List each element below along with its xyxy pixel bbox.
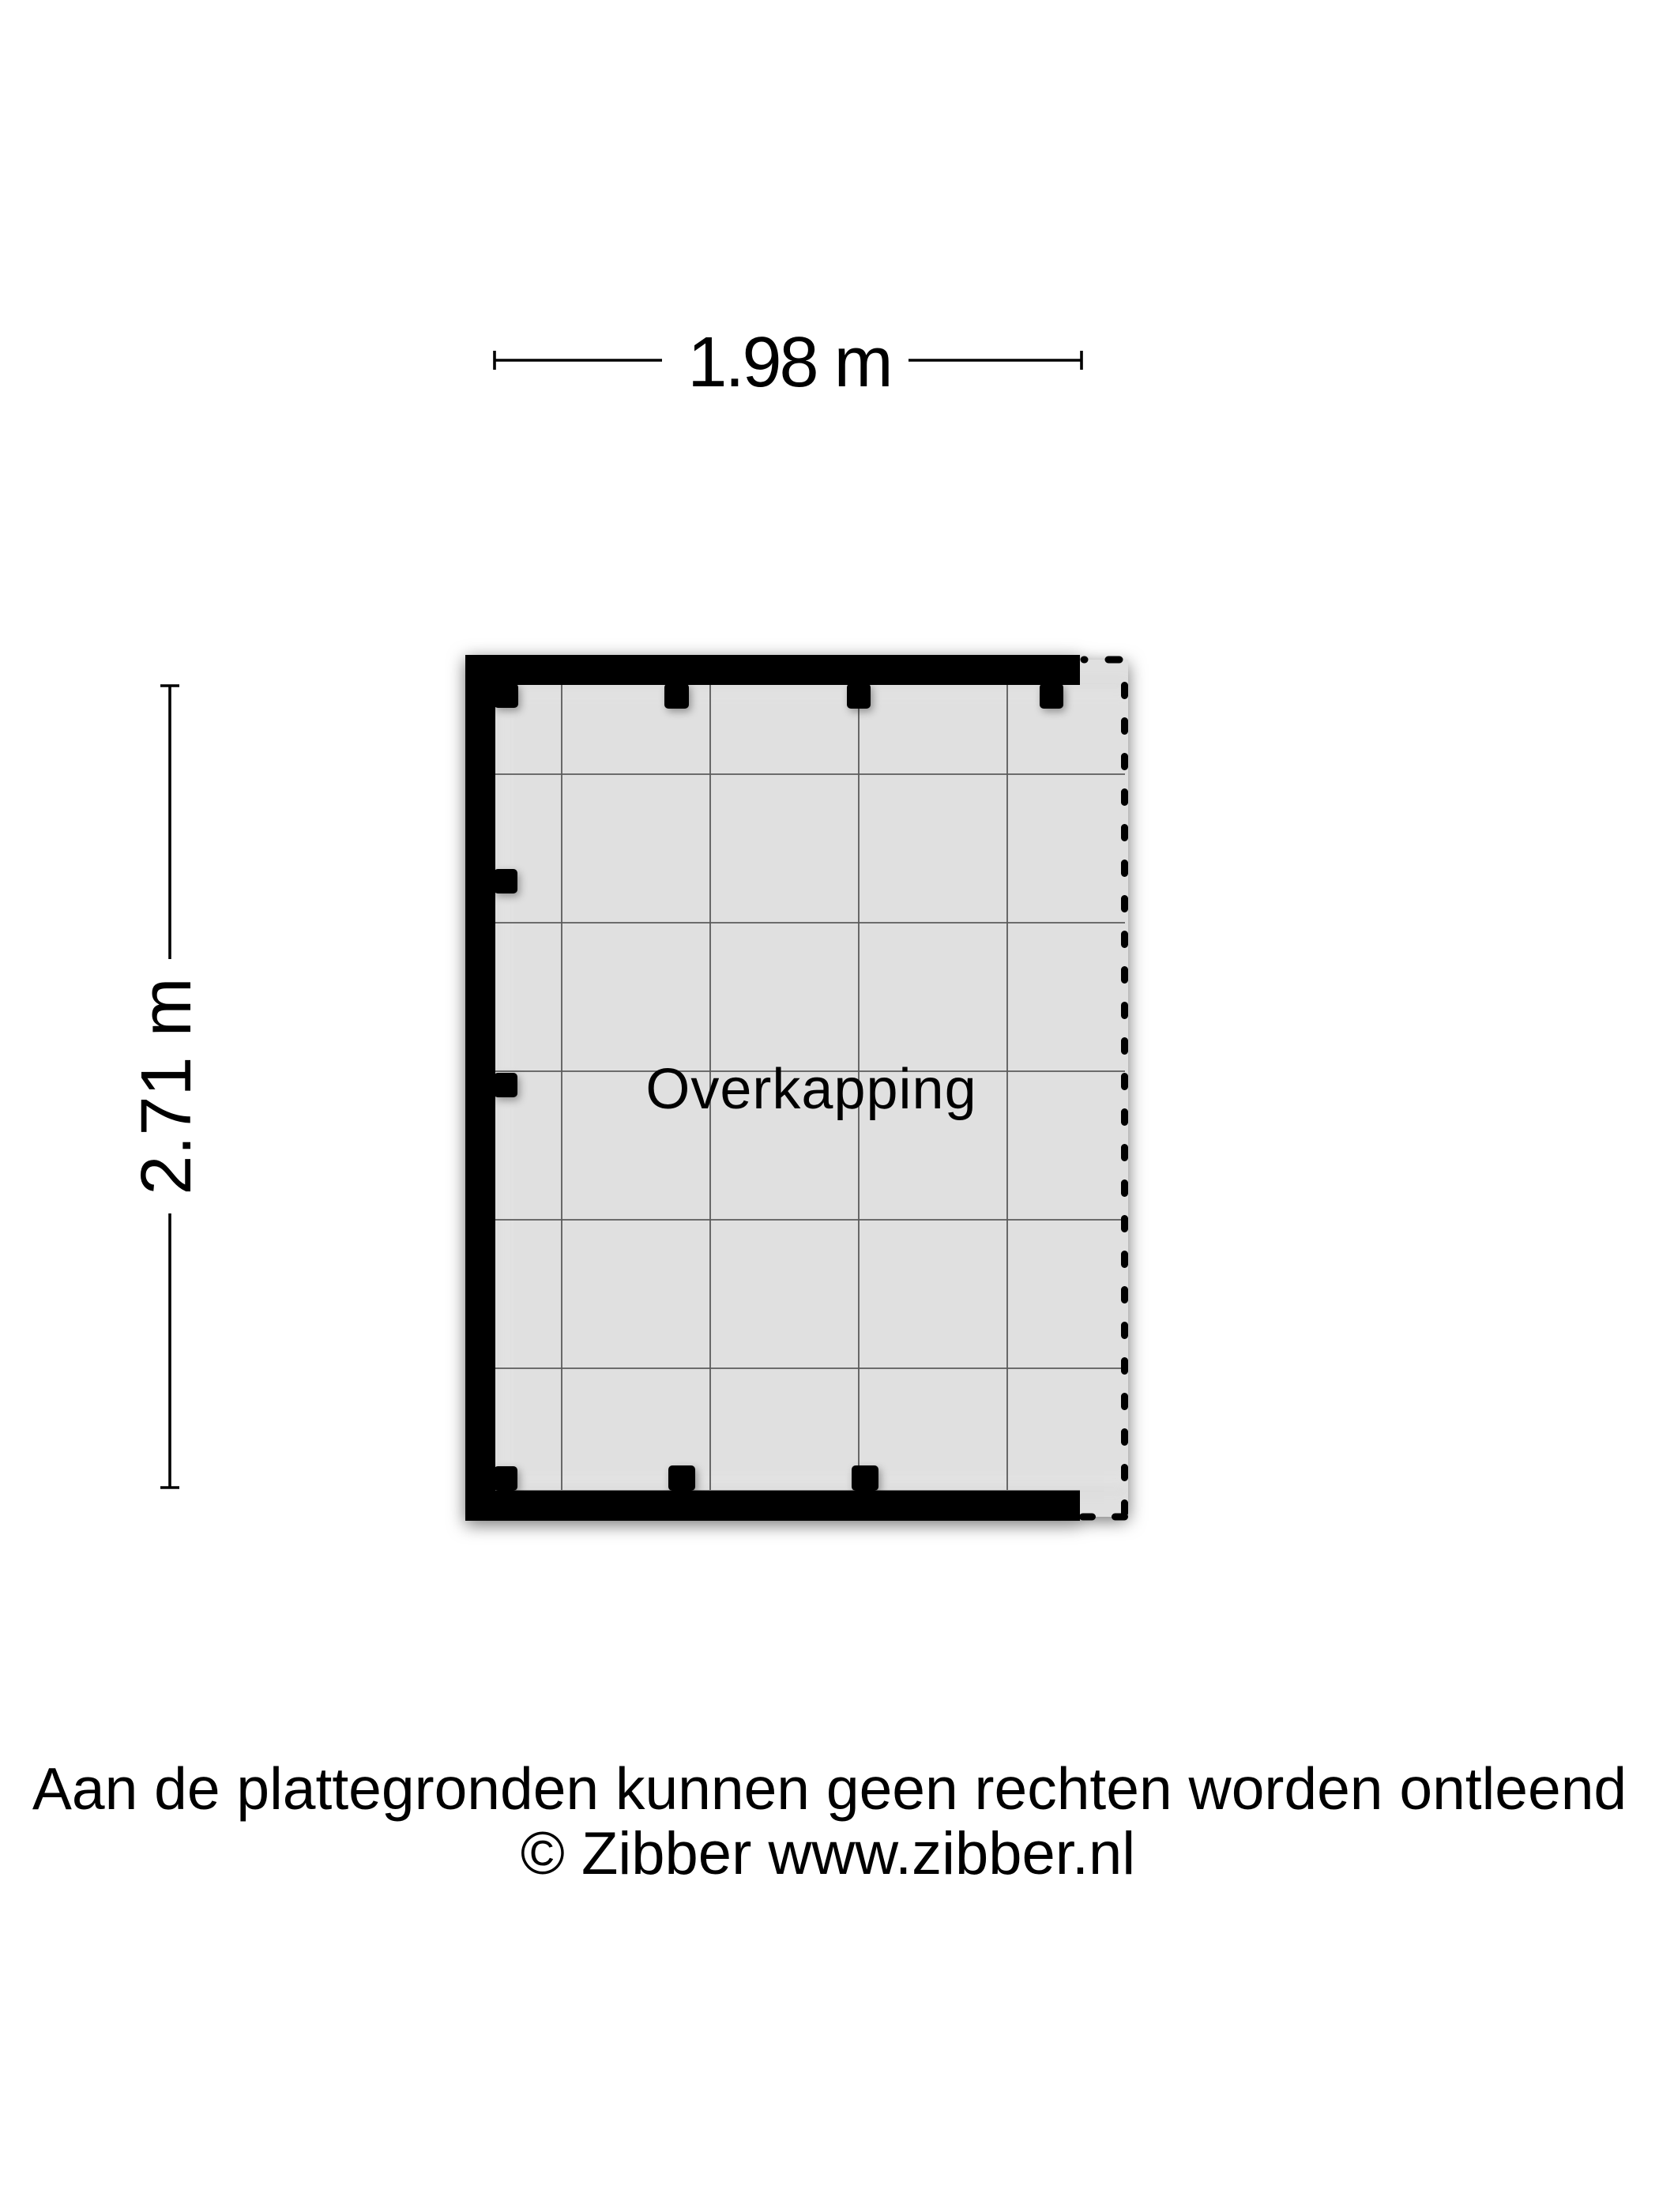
svg-text:Overkapping: Overkapping (645, 1058, 976, 1121)
svg-text:2.71 m: 2.71 m (127, 977, 206, 1194)
svg-text:© Zibber www.zibber.nl: © Zibber www.zibber.nl (521, 1820, 1135, 1887)
svg-text:Aan de plattegronden kunnen ge: Aan de plattegronden kunnen geen rechten… (32, 1755, 1627, 1822)
svg-text:1.98 m: 1.98 m (687, 323, 890, 402)
